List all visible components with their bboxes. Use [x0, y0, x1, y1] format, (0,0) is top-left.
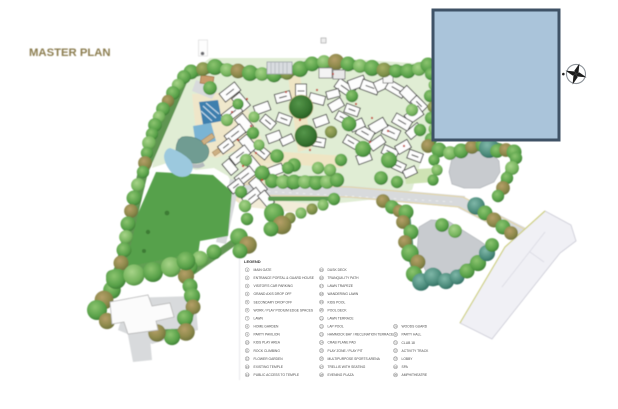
svg-text:WORK / PLAY PODIUM EDGE SPACES: WORK / PLAY PODIUM EDGE SPACES: [254, 308, 314, 312]
svg-text:POOL DECK: POOL DECK: [328, 308, 348, 312]
svg-text:CLUB 18: CLUB 18: [402, 341, 416, 345]
svg-text:SECONDARY DROP OFF: SECONDARY DROP OFF: [254, 300, 293, 304]
svg-text:LOBBY: LOBBY: [402, 357, 414, 361]
svg-text:MAIN GATE: MAIN GATE: [254, 268, 273, 272]
svg-text:ENTRANCE PORTAL & GUARD HOUSE: ENTRANCE PORTAL & GUARD HOUSE: [254, 276, 315, 280]
svg-text:PARTY PAVILION: PARTY PAVILION: [254, 333, 281, 337]
svg-text:FLOWER GARDEN: FLOWER GARDEN: [254, 357, 284, 361]
svg-text:WANDERING LAWN: WANDERING LAWN: [328, 292, 359, 296]
svg-text:DUSK DECK: DUSK DECK: [328, 268, 348, 272]
svg-text:AMPHITHEATRE: AMPHITHEATRE: [402, 373, 428, 377]
svg-text:ACTIVITY TRACK: ACTIVITY TRACK: [402, 349, 430, 353]
svg-text:PUBLIC ACCESS TO TEMPLE: PUBLIC ACCESS TO TEMPLE: [254, 373, 300, 377]
svg-text:LAWN TRAPEZE: LAWN TRAPEZE: [328, 284, 354, 288]
svg-text:PLAY ZONE / PLAY PIT: PLAY ZONE / PLAY PIT: [328, 349, 363, 353]
svg-text:EXISTING TEMPLE: EXISTING TEMPLE: [254, 365, 284, 369]
svg-text:SPA: SPA: [402, 365, 409, 369]
svg-text:EVENING PLAZA: EVENING PLAZA: [328, 373, 355, 377]
svg-text:HAMMOCK BAY / RECLINATION TERR: HAMMOCK BAY / RECLINATION TERRACE: [328, 333, 395, 337]
svg-text:HOME GARDEN: HOME GARDEN: [254, 325, 280, 329]
svg-text:MULTIPURPOSE SPORTS ARENA: MULTIPURPOSE SPORTS ARENA: [328, 357, 381, 361]
svg-text:ROCK CLIMBING: ROCK CLIMBING: [254, 349, 281, 353]
svg-text:TRELLIS WITH SEATING: TRELLIS WITH SEATING: [328, 365, 366, 369]
svg-text:CRAB PLANE PAD: CRAB PLANE PAD: [328, 341, 357, 345]
svg-text:PARTY HALL: PARTY HALL: [402, 333, 422, 337]
svg-text:GRAND AXIS DROP OFF: GRAND AXIS DROP OFF: [254, 292, 292, 296]
svg-text:LAWN TERRACE: LAWN TERRACE: [328, 317, 355, 321]
svg-text:KIDS POOL: KIDS POOL: [328, 300, 346, 304]
svg-text:KIDS PLAY AREA: KIDS PLAY AREA: [254, 341, 281, 345]
svg-text:MASTER PLAN: MASTER PLAN: [29, 47, 111, 59]
svg-text:LAWN: LAWN: [254, 317, 264, 321]
svg-text:WOODS GUARD: WOODS GUARD: [402, 325, 428, 329]
svg-text:VISITOR'S CAR PARKING: VISITOR'S CAR PARKING: [254, 284, 294, 288]
svg-text:LAP POOL: LAP POOL: [328, 325, 344, 329]
svg-text:TRANQUILITY PATH: TRANQUILITY PATH: [328, 276, 360, 280]
svg-text:LEGEND: LEGEND: [244, 259, 261, 264]
